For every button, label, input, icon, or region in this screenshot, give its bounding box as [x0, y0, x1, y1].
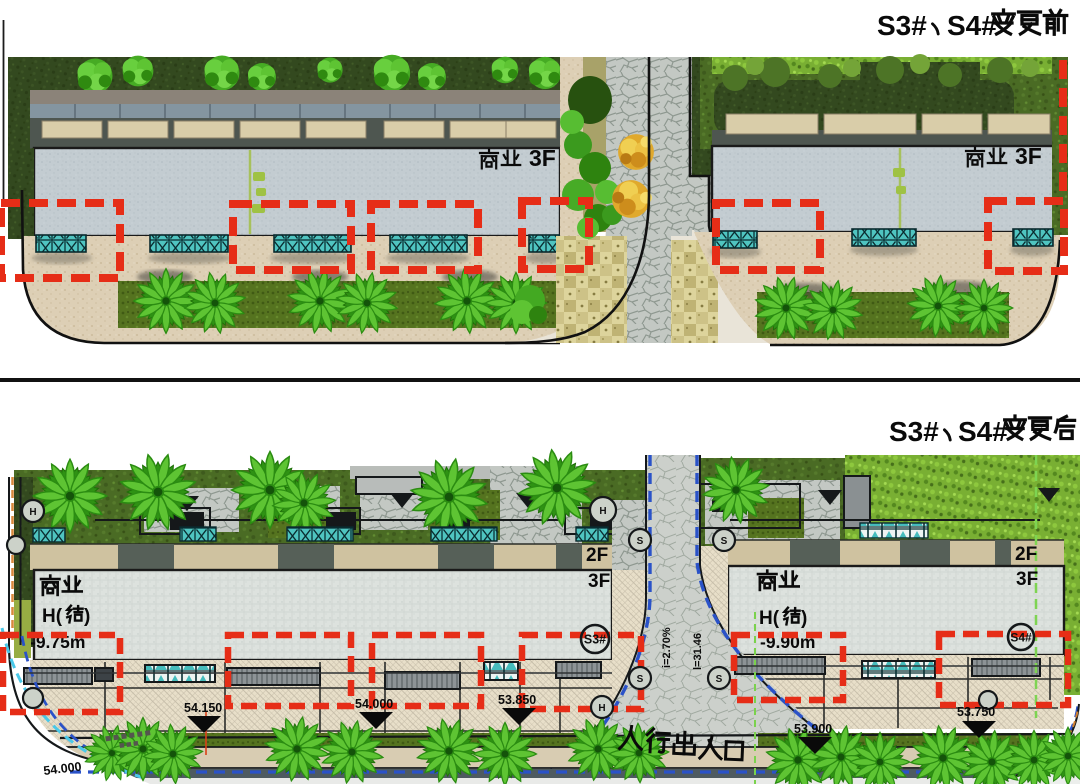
- svg-text:3F: 3F: [588, 571, 610, 592]
- svg-text:H: H: [29, 507, 36, 518]
- svg-text:3F: 3F: [529, 145, 556, 171]
- svg-text:3F: 3F: [1015, 143, 1042, 169]
- svg-text:2F: 2F: [586, 545, 608, 566]
- svg-text:H(: H(: [42, 606, 63, 627]
- svg-text:S4#: S4#: [1010, 631, 1032, 645]
- svg-text:i=2.70%: i=2.70%: [661, 627, 673, 668]
- svg-text:53.850: 53.850: [498, 693, 536, 707]
- svg-text:l=31.46: l=31.46: [692, 633, 704, 670]
- svg-text:S: S: [637, 536, 644, 547]
- svg-text:S: S: [716, 674, 723, 685]
- svg-text:S3#: S3#: [584, 633, 606, 647]
- svg-text:S: S: [637, 674, 644, 685]
- svg-text:2F: 2F: [1015, 544, 1037, 565]
- svg-text:S4#: S4#: [958, 416, 1008, 447]
- svg-text:54.000: 54.000: [355, 697, 393, 711]
- svg-text:S4#: S4#: [947, 10, 997, 41]
- svg-text:3F: 3F: [1016, 569, 1038, 590]
- svg-text:H(: H(: [759, 608, 780, 629]
- svg-text:S: S: [721, 536, 728, 547]
- svg-text:S3#: S3#: [889, 416, 939, 447]
- svg-text:54.150: 54.150: [184, 701, 222, 715]
- svg-text:H: H: [599, 506, 606, 517]
- svg-text:): ): [84, 606, 90, 627]
- svg-text:H: H: [598, 703, 605, 714]
- svg-text:S3#: S3#: [877, 10, 927, 41]
- svg-text:53.900: 53.900: [794, 722, 832, 736]
- svg-text:): ): [801, 608, 807, 629]
- svg-text:53.750: 53.750: [957, 705, 995, 719]
